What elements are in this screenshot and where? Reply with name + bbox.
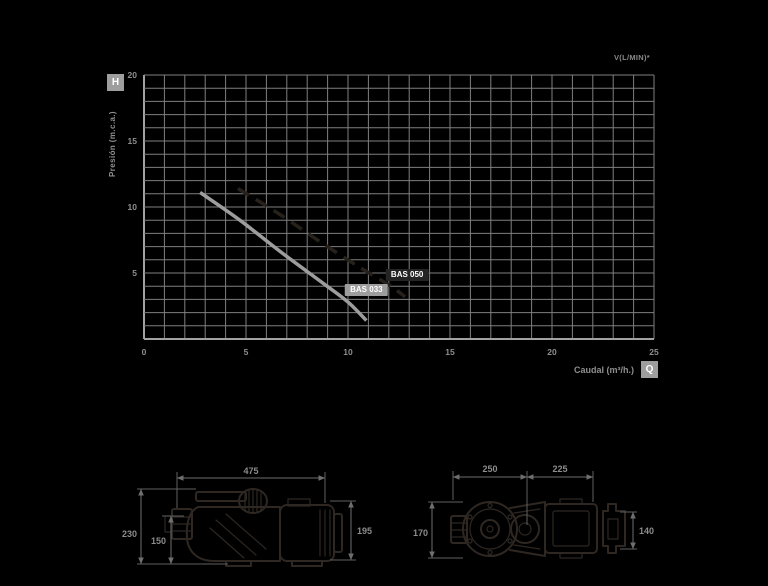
dim-label-150: 150 [151, 536, 166, 546]
x-tick-20: 20 [547, 347, 557, 357]
pump-dimension-drawings: 475 230 150 195 [0, 425, 768, 585]
curve-label-bas-050: BAS 050 [386, 269, 428, 281]
y-tick-10: 10 [128, 202, 138, 212]
pump-side-art [165, 489, 342, 566]
catalog-page: { "chart_data": { "type": "line", "title… [0, 0, 768, 586]
pump-curve-chart: 05101520255101520 [0, 0, 768, 420]
axis-tick-labels: 05101520255101520 [128, 70, 659, 357]
dim-label-195: 195 [357, 526, 372, 536]
y-tick-20: 20 [128, 70, 138, 80]
y-tick-5: 5 [132, 268, 137, 278]
y-tick-15: 15 [128, 136, 138, 146]
curve-label-bas-033: BAS 033 [345, 284, 387, 296]
dim-label-230: 230 [122, 529, 137, 539]
dimension-width-225: 225 [527, 464, 593, 502]
dim-label-170: 170 [413, 528, 428, 538]
pump-front-art [451, 499, 625, 558]
pump-side-view-drawing: 475 230 150 195 [122, 466, 372, 566]
pump-front-view-drawing: 250 225 170 140 [413, 464, 654, 558]
x-tick-10: 10 [343, 347, 353, 357]
x-tick-25: 25 [649, 347, 659, 357]
dim-label-250: 250 [482, 464, 497, 474]
x-tick-15: 15 [445, 347, 455, 357]
flow-axis-badge: Q [641, 361, 658, 378]
dim-label-140: 140 [639, 526, 654, 536]
dim-label-225: 225 [552, 464, 567, 474]
x-tick-0: 0 [142, 347, 147, 357]
dim-label-475: 475 [243, 466, 258, 476]
x-axis-label: Caudal (m³/h.) [574, 365, 634, 375]
x-axis-label-row: Caudal (m³/h.) Q [458, 361, 658, 378]
curve-bas-033 [200, 192, 366, 320]
x-tick-5: 5 [244, 347, 249, 357]
